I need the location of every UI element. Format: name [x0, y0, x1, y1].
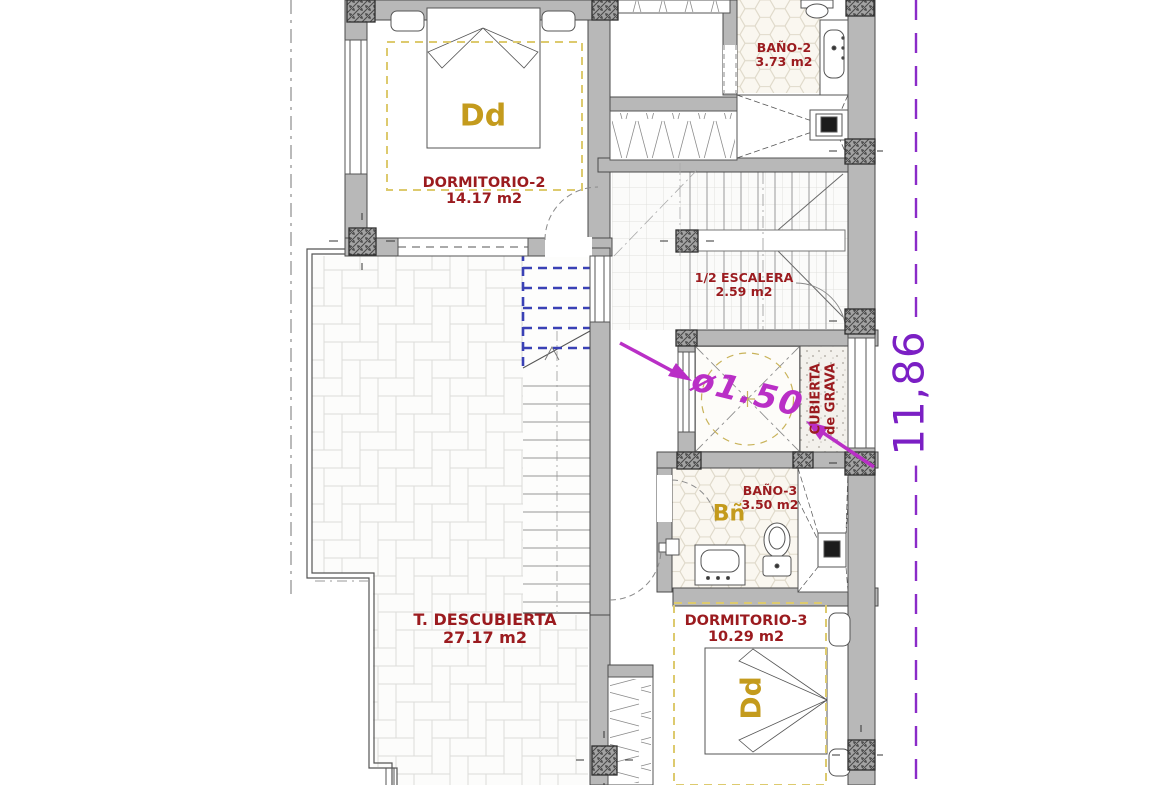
floorplan-canvas: DORMITORIO-2 14.17 m2 Dd BAÑO-2 3.73 m2 … [0, 0, 1170, 785]
room-tag-bano-3: Bñ [713, 502, 745, 527]
stair-landing [695, 230, 845, 251]
window-terrace-north [398, 238, 528, 256]
dimension-label: 11,86 [885, 320, 934, 465]
door-terrace-stairs [590, 256, 610, 322]
room-label-bano-2: BAÑO-2 3.73 m2 [756, 41, 813, 69]
room-tag-dormitorio-3: Dd [735, 676, 768, 719]
window-dormitorio2-west [345, 40, 367, 174]
room-label-terraza: T. DESCUBIERTA 27.17 m2 [413, 611, 556, 647]
sink-bano2 [820, 20, 848, 95]
door-arc-dormitorio-3 [610, 549, 661, 600]
floorplan-drawing [0, 0, 1170, 785]
shower-bano3 [798, 468, 848, 592]
toilet-bano3 [763, 523, 791, 576]
room-tag-dormitorio-2: Dd [460, 99, 506, 134]
window-east-wall [848, 338, 875, 448]
exterior-staircase [523, 250, 590, 615]
room-label-dormitorio-3: DORMITORIO-3 10.29 m2 [685, 613, 808, 645]
room-label-dormitorio-2: DORMITORIO-2 14.17 m2 [423, 175, 546, 207]
room-label-escalera: 1/2 ESCALERA 2.59 m2 [695, 271, 794, 299]
room-label-bano-3: BAÑO-3 3.50 m2 [742, 484, 799, 512]
closet-top [618, 0, 730, 13]
closet-hall [610, 97, 737, 160]
gravel-roof-label: CUBIERTA de GRAVA [809, 363, 838, 435]
shower-bano2 [737, 95, 848, 158]
